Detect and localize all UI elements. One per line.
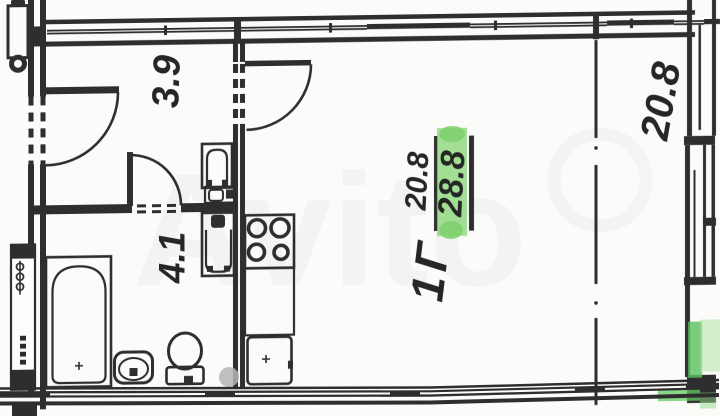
svg-text:4.1: 4.1	[152, 231, 193, 284]
svg-text:3.9: 3.9	[145, 55, 189, 109]
svg-text:1Г: 1Г	[400, 235, 459, 304]
svg-text:28.8: 28.8	[431, 150, 472, 219]
svg-text:20.8: 20.8	[399, 151, 435, 212]
